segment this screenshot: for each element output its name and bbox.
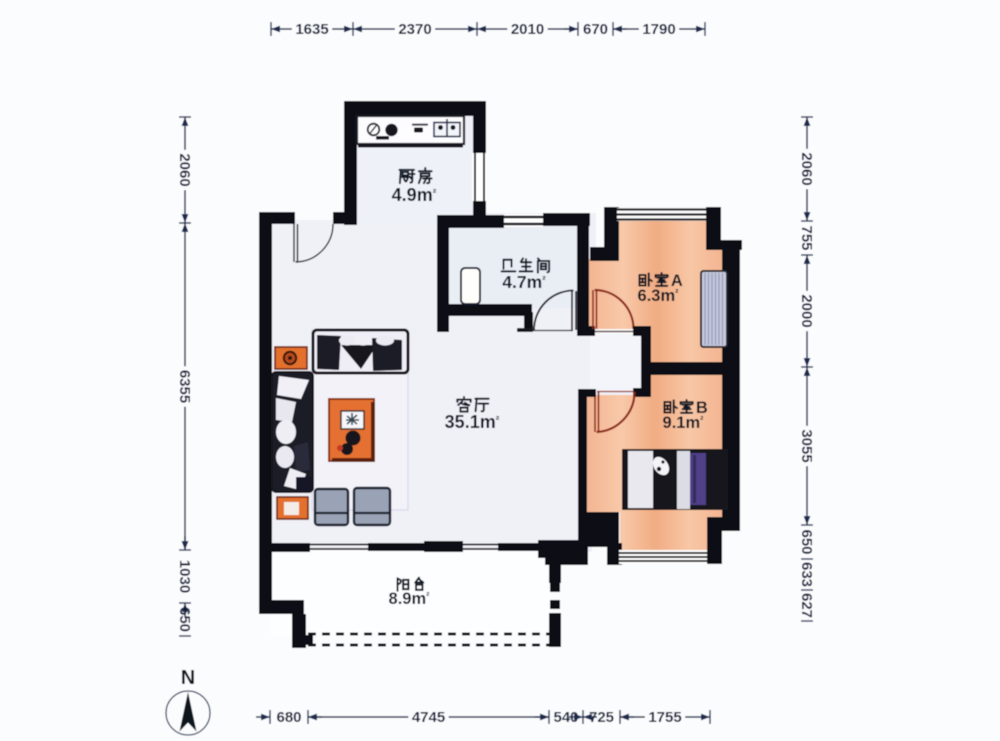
svg-text:3055: 3055 (798, 429, 815, 462)
svg-text:2060: 2060 (176, 153, 193, 186)
svg-text:1790: 1790 (642, 21, 675, 38)
svg-text:6355: 6355 (176, 370, 193, 403)
svg-text:4.7m²: 4.7m² (502, 272, 546, 292)
svg-text:2060: 2060 (798, 152, 815, 185)
svg-text:8.9m²: 8.9m² (389, 590, 431, 608)
svg-text:35.1m²: 35.1m² (445, 412, 500, 432)
svg-text:633: 633 (798, 562, 815, 587)
svg-text:627: 627 (798, 593, 815, 618)
svg-text:2000: 2000 (798, 294, 815, 327)
svg-text:6.3m²: 6.3m² (638, 287, 680, 305)
svg-text:1755: 1755 (648, 709, 681, 726)
svg-text:1635: 1635 (295, 21, 328, 38)
svg-text:680: 680 (276, 709, 301, 726)
svg-text:650: 650 (176, 607, 193, 632)
svg-text:2010: 2010 (511, 21, 544, 38)
svg-text:2370: 2370 (398, 21, 431, 38)
svg-text:9.1m²: 9.1m² (663, 414, 705, 432)
svg-text:755: 755 (798, 225, 815, 250)
svg-text:725: 725 (589, 709, 614, 726)
svg-text:650: 650 (798, 529, 815, 554)
svg-text:N: N (181, 667, 195, 689)
svg-text:670: 670 (583, 21, 608, 38)
svg-text:4745: 4745 (412, 709, 445, 726)
svg-text:4.9m²: 4.9m² (392, 185, 437, 205)
svg-text:1030: 1030 (176, 560, 193, 593)
